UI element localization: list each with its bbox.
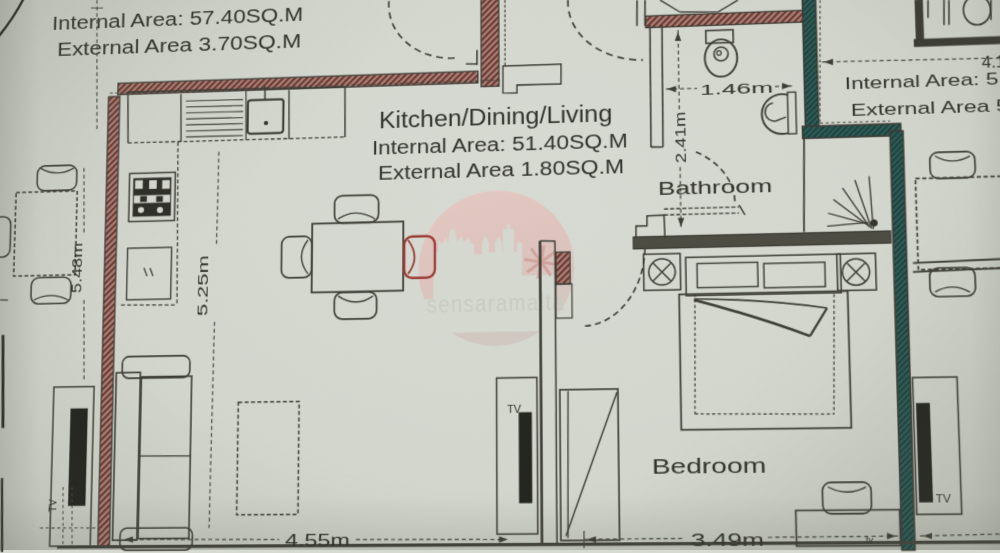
- svg-text:TV: TV: [507, 404, 521, 416]
- svg-text:External Area 1.80SQ.M: External Area 1.80SQ.M: [378, 156, 624, 184]
- svg-text:3.49m: 3.49m: [691, 531, 765, 551]
- svg-text:TV: TV: [936, 494, 952, 507]
- svg-text:2.41m: 2.41m: [672, 111, 690, 163]
- svg-text:Kitchen/Dining/Living: Kitchen/Dining/Living: [379, 100, 613, 133]
- svg-text:Internal Area: 51.40SQ.M: Internal Area: 51.40SQ.M: [372, 131, 628, 160]
- svg-text:tv: tv: [866, 534, 875, 545]
- svg-text:5.25m: 5.25m: [193, 255, 211, 316]
- svg-text:Internal Area: 5: Internal Area: 5: [845, 70, 1000, 93]
- svg-text:External Area 3.70SQ.M: External Area 3.70SQ.M: [57, 31, 301, 60]
- svg-text:Bathroom: Bathroom: [658, 176, 773, 199]
- svg-text:1.46m: 1.46m: [700, 80, 774, 99]
- svg-text:sensaramalta: sensaramalta: [427, 290, 565, 319]
- svg-text:5.48m: 5.48m: [69, 243, 86, 294]
- svg-text:External Area 5: External Area 5: [851, 97, 1000, 120]
- svg-text:Bedroom: Bedroom: [652, 454, 767, 480]
- svg-text:4.55m: 4.55m: [285, 531, 350, 550]
- svg-text:TV: TV: [48, 498, 59, 512]
- svg-text:4.1: 4.1: [982, 54, 1000, 72]
